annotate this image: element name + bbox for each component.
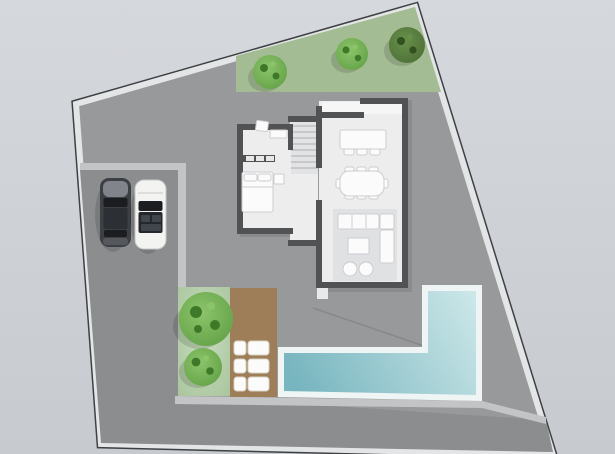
dining-table [340, 171, 384, 196]
tree-highlight [407, 34, 413, 40]
bathroom-vanity [270, 130, 287, 138]
tree-speckle [206, 367, 214, 375]
coffee-table [348, 238, 369, 254]
tree-speckle [192, 358, 201, 367]
closet-doors [246, 156, 274, 161]
bed-pillow [244, 174, 257, 181]
site-plan-drawing [0, 0, 615, 454]
house-shadow-right [408, 100, 412, 292]
nightstand [274, 174, 284, 184]
dark-car [95, 178, 131, 252]
car-seat [152, 215, 161, 222]
chaise [380, 230, 394, 263]
wall-right [402, 98, 408, 288]
wall-rightwing-top-right [360, 98, 408, 104]
lounger-headrest [234, 341, 246, 355]
kitchen-island [340, 130, 386, 149]
bush-foliage [184, 348, 222, 386]
tree-highlight [207, 302, 215, 310]
lounger-headrest [234, 359, 246, 373]
stair-floor [291, 120, 318, 174]
tree-speckle [273, 73, 280, 80]
sun-lounger [234, 377, 269, 391]
car-windshield [104, 198, 128, 207]
tree-foliage [179, 292, 233, 346]
tree-foliage [389, 27, 425, 63]
entry-step [317, 288, 328, 299]
car-rear-window [104, 230, 127, 237]
tree-highlight [203, 355, 209, 361]
pouf [359, 262, 373, 276]
bed-pillow [258, 174, 271, 181]
car-trunk [103, 238, 128, 245]
deck [230, 288, 277, 397]
wall-rightwing-left-lower [316, 200, 322, 288]
car-hood [103, 181, 128, 197]
house-shadow-bottom [320, 288, 408, 292]
closet-door [266, 156, 274, 161]
staircase [291, 120, 318, 174]
tree-foliage [253, 55, 287, 89]
house-shadow-bottom-left [240, 234, 294, 237]
walkway-top [80, 163, 186, 170]
wall-rightwing-bottom [316, 282, 408, 288]
car-roof [104, 208, 128, 229]
kitchen-island-group [340, 130, 386, 155]
car-windshield [139, 201, 163, 211]
closet-door [256, 156, 264, 161]
tree-highlight [270, 61, 276, 67]
pouf [343, 262, 357, 276]
tree-foliage [336, 38, 368, 70]
wall-hall-bottom [288, 240, 320, 246]
lounger-headrest [234, 377, 246, 391]
tree-speckle [210, 320, 220, 330]
tree-speckle [355, 55, 361, 61]
wall-stairs-left [288, 124, 293, 150]
car-rear-seat [141, 224, 161, 231]
tree-highlight [352, 44, 357, 49]
closet-door [246, 156, 254, 161]
tree-speckle [194, 325, 202, 333]
tree-speckle [190, 306, 202, 318]
lounger-seat [248, 377, 269, 391]
sun-lounger [234, 341, 269, 355]
bathroom-door [255, 120, 268, 132]
lounger-seat [248, 341, 269, 355]
tree-speckle [409, 46, 416, 53]
wall-rightwing-top-left [316, 112, 364, 118]
sofa [338, 214, 379, 229]
car-seat [141, 215, 150, 222]
wall-bedroom-bottom [237, 228, 293, 234]
armchair [380, 214, 394, 229]
walkway-vertical [178, 163, 186, 287]
sun-lounger [234, 359, 269, 373]
tree-speckle [342, 46, 349, 53]
lounger-seat [248, 359, 269, 373]
white-car [130, 180, 166, 254]
tree-speckle [260, 64, 268, 72]
site-plan-canvas [0, 0, 615, 454]
tree-speckle [397, 37, 405, 45]
